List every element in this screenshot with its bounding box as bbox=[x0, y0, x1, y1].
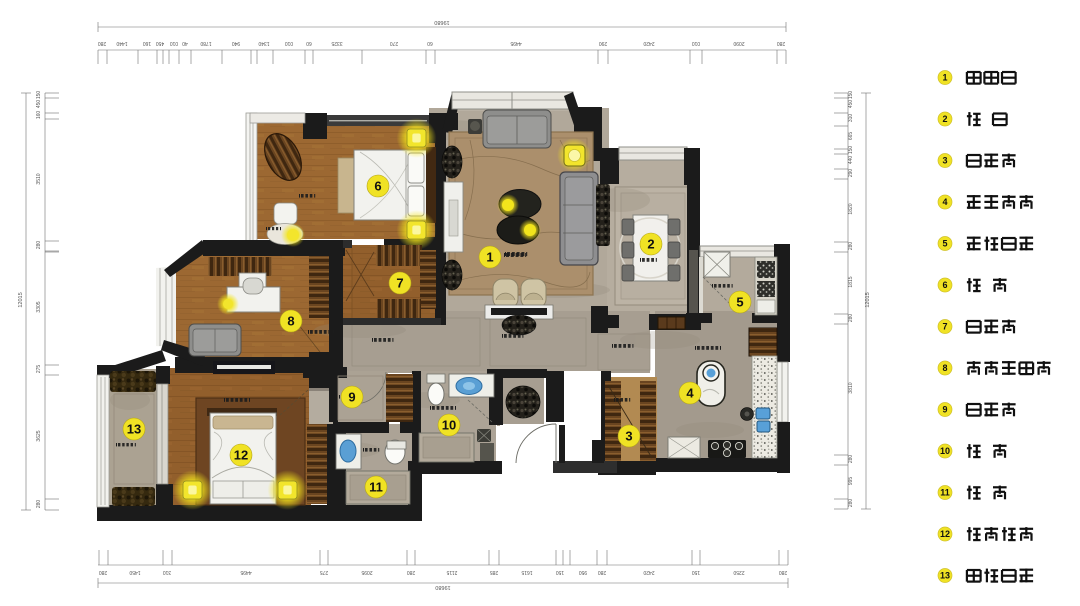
svg-text:280: 280 bbox=[848, 314, 854, 323]
svg-text:8: 8 bbox=[942, 363, 947, 373]
svg-text:1: 1 bbox=[942, 73, 947, 83]
svg-text:12015: 12015 bbox=[18, 292, 24, 307]
svg-text:10: 10 bbox=[940, 446, 950, 456]
svg-text:13: 13 bbox=[127, 422, 141, 437]
svg-text:11: 11 bbox=[369, 480, 383, 495]
svg-text:11: 11 bbox=[940, 488, 950, 498]
svg-text:280: 280 bbox=[98, 40, 107, 46]
svg-text:1440: 1440 bbox=[116, 40, 127, 46]
svg-text:310: 310 bbox=[848, 114, 854, 123]
svg-text:150: 150 bbox=[848, 91, 854, 100]
svg-text:1820: 1820 bbox=[848, 203, 854, 214]
svg-text:60: 60 bbox=[306, 40, 312, 46]
svg-text:3510: 3510 bbox=[36, 173, 42, 184]
svg-text:280: 280 bbox=[99, 569, 108, 575]
svg-text:2250: 2250 bbox=[733, 569, 744, 575]
svg-text:160: 160 bbox=[143, 40, 152, 46]
svg-text:290: 290 bbox=[599, 40, 608, 46]
svg-text:4495: 4495 bbox=[510, 40, 521, 46]
svg-text:12015: 12015 bbox=[865, 292, 871, 307]
svg-text:3625: 3625 bbox=[36, 430, 42, 441]
svg-text:4495: 4495 bbox=[240, 569, 251, 575]
svg-text:3: 3 bbox=[942, 156, 947, 166]
svg-text:2095: 2095 bbox=[361, 569, 372, 575]
svg-text:010: 010 bbox=[170, 40, 179, 46]
svg-text:450: 450 bbox=[156, 40, 165, 46]
svg-text:6: 6 bbox=[942, 280, 947, 290]
svg-text:2420: 2420 bbox=[643, 569, 654, 575]
svg-text:12: 12 bbox=[940, 529, 950, 539]
svg-text:440: 440 bbox=[848, 156, 854, 165]
svg-text:010: 010 bbox=[285, 40, 294, 46]
svg-text:5: 5 bbox=[736, 295, 743, 310]
svg-text:13: 13 bbox=[940, 571, 950, 581]
svg-text:2: 2 bbox=[647, 237, 654, 252]
svg-text:3325: 3325 bbox=[331, 40, 342, 46]
svg-text:7: 7 bbox=[396, 276, 403, 291]
svg-text:280: 280 bbox=[779, 569, 788, 575]
svg-text:60: 60 bbox=[427, 40, 433, 46]
svg-text:19680: 19680 bbox=[434, 19, 449, 25]
svg-text:3305: 3305 bbox=[36, 301, 42, 312]
svg-text:150: 150 bbox=[848, 146, 854, 155]
svg-text:8: 8 bbox=[287, 314, 294, 329]
svg-text:280: 280 bbox=[598, 569, 607, 575]
svg-text:2115: 2115 bbox=[446, 569, 457, 575]
svg-text:280: 280 bbox=[777, 40, 786, 46]
svg-text:5: 5 bbox=[942, 239, 947, 249]
svg-text:150: 150 bbox=[556, 569, 565, 575]
svg-text:310: 310 bbox=[163, 569, 172, 575]
svg-text:665: 665 bbox=[848, 132, 854, 141]
svg-text:280: 280 bbox=[848, 455, 854, 464]
svg-text:450: 450 bbox=[36, 100, 42, 109]
svg-text:10: 10 bbox=[442, 418, 456, 433]
svg-text:280: 280 bbox=[407, 569, 416, 575]
svg-text:1450: 1450 bbox=[129, 569, 140, 575]
svg-text:290: 290 bbox=[848, 169, 854, 178]
svg-text:010: 010 bbox=[692, 40, 701, 46]
svg-text:3810: 3810 bbox=[848, 382, 854, 393]
svg-text:150: 150 bbox=[36, 91, 42, 100]
svg-text:1780: 1780 bbox=[200, 40, 211, 46]
svg-text:2420: 2420 bbox=[643, 40, 654, 46]
svg-text:6: 6 bbox=[374, 179, 381, 194]
svg-text:280: 280 bbox=[848, 499, 854, 508]
svg-text:280: 280 bbox=[36, 241, 42, 250]
svg-text:4: 4 bbox=[942, 197, 947, 207]
svg-text:1615: 1615 bbox=[521, 569, 532, 575]
svg-text:9: 9 bbox=[942, 405, 947, 415]
svg-text:160: 160 bbox=[36, 111, 42, 120]
svg-text:1: 1 bbox=[486, 250, 493, 265]
svg-text:285: 285 bbox=[490, 569, 499, 575]
svg-text:2090: 2090 bbox=[733, 40, 744, 46]
svg-text:1340: 1340 bbox=[258, 40, 269, 46]
svg-text:270: 270 bbox=[390, 40, 399, 46]
svg-text:275: 275 bbox=[320, 569, 329, 575]
svg-text:995: 995 bbox=[848, 477, 854, 486]
svg-text:150: 150 bbox=[692, 569, 701, 575]
svg-text:280: 280 bbox=[36, 500, 42, 509]
svg-text:7: 7 bbox=[942, 322, 947, 332]
svg-text:19680: 19680 bbox=[435, 584, 450, 590]
svg-text:2: 2 bbox=[942, 114, 947, 124]
svg-text:450: 450 bbox=[848, 100, 854, 109]
svg-text:40: 40 bbox=[182, 40, 188, 46]
svg-text:275: 275 bbox=[36, 365, 42, 374]
svg-text:12: 12 bbox=[234, 448, 248, 463]
svg-text:9: 9 bbox=[348, 390, 355, 405]
svg-text:940: 940 bbox=[232, 40, 241, 46]
svg-text:3: 3 bbox=[625, 429, 632, 444]
svg-text:1815: 1815 bbox=[848, 276, 854, 287]
svg-text:950: 950 bbox=[579, 569, 588, 575]
svg-text:4: 4 bbox=[686, 386, 694, 401]
svg-text:280: 280 bbox=[848, 242, 854, 251]
